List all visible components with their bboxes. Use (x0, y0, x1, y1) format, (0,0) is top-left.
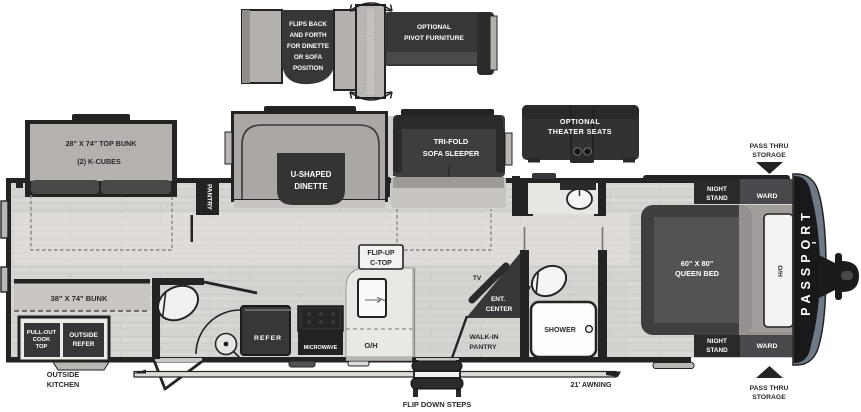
svg-text:TV: TV (473, 275, 482, 282)
svg-text:38" X 74" BUNK: 38" X 74" BUNK (51, 294, 108, 303)
svg-text:QUEEN BED: QUEEN BED (675, 269, 720, 278)
svg-text:60" X 80": 60" X 80" (681, 259, 714, 268)
svg-text:COOK: COOK (33, 337, 51, 343)
svg-text:ENT.: ENT. (491, 296, 505, 303)
svg-text:WARD: WARD (757, 193, 778, 200)
svg-text:FOR DINETTE: FOR DINETTE (287, 43, 329, 50)
svg-text:STORAGE: STORAGE (752, 152, 786, 159)
svg-text:THEATER SEATS: THEATER SEATS (548, 127, 612, 136)
svg-text:O/H: O/H (776, 265, 783, 277)
svg-text:OPTIONAL: OPTIONAL (417, 24, 451, 31)
svg-text:REFER: REFER (73, 341, 95, 348)
svg-text:PANTRY: PANTRY (206, 184, 213, 211)
svg-text:OPTIONAL: OPTIONAL (560, 117, 601, 126)
svg-text:PIVOT FURNITURE: PIVOT FURNITURE (404, 35, 464, 42)
svg-text:28" X 74" TOP BUNK: 28" X 74" TOP BUNK (66, 139, 138, 148)
svg-text:PULL-OUT: PULL-OUT (27, 330, 57, 336)
svg-text:FLIP-UP: FLIP-UP (367, 250, 395, 257)
svg-text:WARD: WARD (757, 343, 778, 350)
svg-text:SOFA SLEEPER: SOFA SLEEPER (423, 149, 480, 158)
svg-text:NIGHT: NIGHT (707, 338, 727, 345)
svg-text:FLIP DOWN STEPS: FLIP DOWN STEPS (403, 400, 472, 409)
svg-text:NIGHT: NIGHT (707, 186, 727, 193)
svg-text:WALK-IN: WALK-IN (469, 334, 498, 341)
svg-text:OUTSIDE: OUTSIDE (47, 370, 80, 379)
svg-text:PANTRY: PANTRY (469, 344, 497, 351)
svg-text:O/H: O/H (364, 341, 377, 350)
svg-text:REFER: REFER (254, 335, 282, 342)
svg-text:STAND: STAND (706, 195, 728, 202)
svg-text:OR SOFA: OR SOFA (294, 54, 323, 61)
svg-text:PASSPORT: PASSPORT (799, 208, 813, 316)
svg-text:21' AWNING: 21' AWNING (571, 380, 612, 389)
svg-text:TRI-FOLD: TRI-FOLD (434, 137, 469, 146)
svg-text:OUTSIDE: OUTSIDE (69, 332, 98, 339)
svg-text:KITCHEN: KITCHEN (47, 380, 79, 389)
svg-text:U-SHAPED: U-SHAPED (291, 170, 332, 179)
svg-text:PASS THRU: PASS THRU (750, 143, 789, 150)
svg-text:MICROWAVE: MICROWAVE (304, 345, 338, 351)
svg-text:FLIPS BACK: FLIPS BACK (289, 21, 327, 28)
svg-text:AND FORTH: AND FORTH (289, 32, 327, 39)
svg-text:CENTER: CENTER (486, 306, 513, 313)
svg-text:DINETTE: DINETTE (294, 182, 327, 191)
svg-text:STAND: STAND (706, 347, 728, 354)
svg-text:SHOWER: SHOWER (544, 327, 576, 334)
svg-text:(2) K-CUBES: (2) K-CUBES (77, 157, 121, 166)
svg-text:POSITION: POSITION (293, 65, 324, 72)
svg-text:STORAGE: STORAGE (752, 394, 786, 401)
svg-text:PASS THRU: PASS THRU (750, 385, 789, 392)
svg-text:TOP: TOP (36, 344, 48, 350)
svg-text:C-TOP: C-TOP (370, 260, 392, 267)
